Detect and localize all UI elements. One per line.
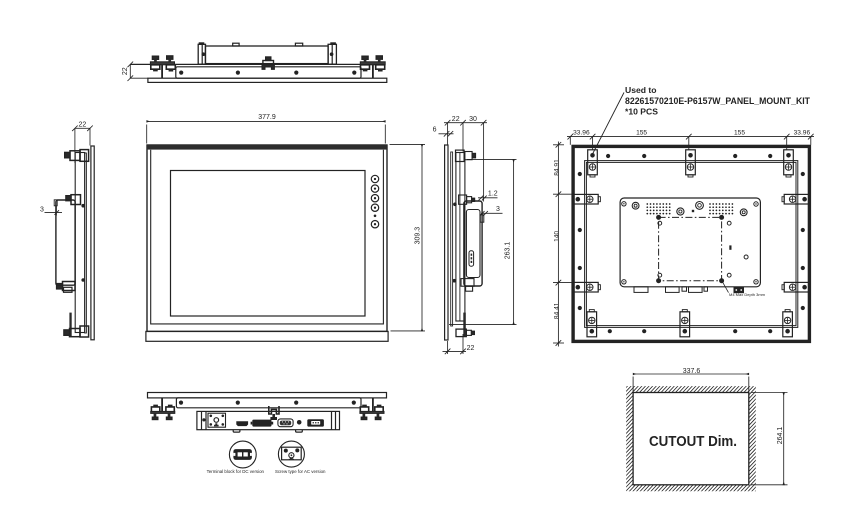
svg-text:3: 3 — [496, 206, 500, 213]
svg-text:309.3: 309.3 — [414, 227, 421, 245]
svg-text:22: 22 — [452, 116, 460, 123]
svg-text:22: 22 — [122, 67, 129, 75]
svg-text:155: 155 — [734, 130, 745, 137]
svg-text:Used to: Used to — [625, 85, 657, 95]
svg-text:33.96: 33.96 — [794, 130, 811, 137]
svg-text:22: 22 — [467, 345, 475, 352]
svg-text:6: 6 — [433, 127, 437, 134]
svg-text:337.6: 337.6 — [683, 368, 701, 375]
svg-text:CUTOUT Dim.: CUTOUT Dim. — [649, 433, 737, 450]
svg-text:M4 Max Depth 3mm: M4 Max Depth 3mm — [729, 292, 766, 297]
svg-text:33.96: 33.96 — [573, 130, 590, 137]
svg-text:30: 30 — [469, 116, 477, 123]
svg-text:155: 155 — [636, 130, 647, 137]
svg-text:1.2: 1.2 — [488, 191, 498, 198]
svg-text:377.9: 377.9 — [258, 114, 276, 121]
svg-text:Terminal block for DC version: Terminal block for DC version — [207, 469, 265, 474]
svg-text:140: 140 — [554, 231, 561, 242]
svg-text:*10 PCS: *10 PCS — [625, 107, 658, 117]
svg-text:Screw type for AC version: Screw type for AC version — [275, 469, 326, 474]
svg-text:22: 22 — [79, 121, 87, 128]
svg-text:3: 3 — [40, 206, 44, 213]
svg-text:82261570210E-P6157W_PANEL_MOUN: 82261570210E-P6157W_PANEL_MOUNT_KIT — [625, 96, 810, 106]
svg-text:264.1: 264.1 — [777, 427, 784, 445]
svg-text:84.41: 84.41 — [554, 302, 561, 319]
svg-text:84.91: 84.91 — [554, 159, 561, 176]
svg-text:263.1: 263.1 — [505, 242, 512, 260]
